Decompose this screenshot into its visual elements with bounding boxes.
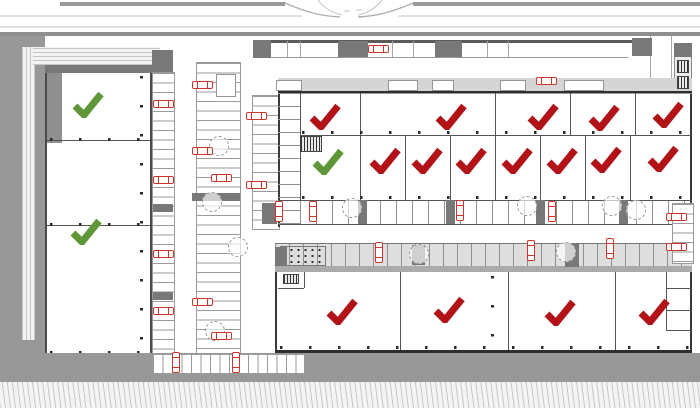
car-icon [456,200,464,221]
rejected-check[interactable] [526,103,560,130]
white-cell [432,80,454,91]
car-icon [666,213,687,221]
car-icon [606,238,614,259]
car-icon [548,201,556,222]
gray-block [674,43,692,57]
tree-icon [228,237,248,257]
white-cell [216,74,236,97]
stair-icon [283,274,299,284]
rejected-check[interactable] [543,299,577,326]
car-icon [527,240,535,261]
car-icon [153,176,174,184]
gray-block [153,292,173,300]
car-icon [275,201,283,222]
car-icon [211,332,232,340]
rejected-check[interactable] [410,147,444,174]
gray-block [253,40,271,58]
car-icon [375,242,383,263]
rejected-check[interactable] [545,147,579,174]
approved-check[interactable] [71,91,105,118]
gray-block [153,204,173,212]
gray-block [152,50,173,72]
white-cell [500,80,526,91]
gray-block [338,41,368,57]
rejected-check[interactable] [368,147,402,174]
car-icon [192,298,213,306]
rejected-check[interactable] [587,104,621,131]
rejected-check[interactable] [637,298,671,325]
rejected-check[interactable] [325,298,359,325]
car-icon [153,307,174,315]
gray-block [435,41,462,57]
white-cell [388,80,418,91]
car-icon [309,201,317,222]
tree-icon [342,198,362,218]
tree-icon [517,196,537,216]
car-icon [153,100,174,108]
approved-check[interactable] [69,218,103,245]
rejected-check[interactable] [454,147,488,174]
car-icon [536,77,557,85]
site-plan [0,0,700,408]
rejected-check[interactable] [589,146,623,173]
rejected-check[interactable] [434,103,468,130]
rejected-check[interactable] [308,103,342,130]
car-icon [246,112,267,120]
stair-icon [677,76,689,89]
car-icon [246,181,267,189]
car-icon [368,45,389,53]
gray-block [632,38,652,56]
tree-icon [602,196,622,216]
tree-icon [202,192,222,212]
stair-icon [677,60,689,73]
car-icon [172,352,180,373]
white-cell [276,80,302,91]
annotation-layer [0,0,700,408]
car-icon [192,81,213,89]
tree-icon [409,244,429,264]
white-cell [564,80,604,91]
rejected-check[interactable] [651,101,685,128]
car-icon [211,174,232,182]
gray-block [446,200,455,224]
tree-icon [556,242,576,262]
rejected-check[interactable] [500,147,534,174]
car-icon [666,243,687,251]
car-icon [153,250,174,258]
rejected-check[interactable] [646,145,680,172]
gray-block [275,247,287,266]
car-icon [192,147,213,155]
car-icon [232,352,240,373]
approved-check[interactable] [311,148,345,175]
tree-icon [626,200,646,220]
rejected-check[interactable] [432,296,466,323]
gray-block [536,200,545,224]
